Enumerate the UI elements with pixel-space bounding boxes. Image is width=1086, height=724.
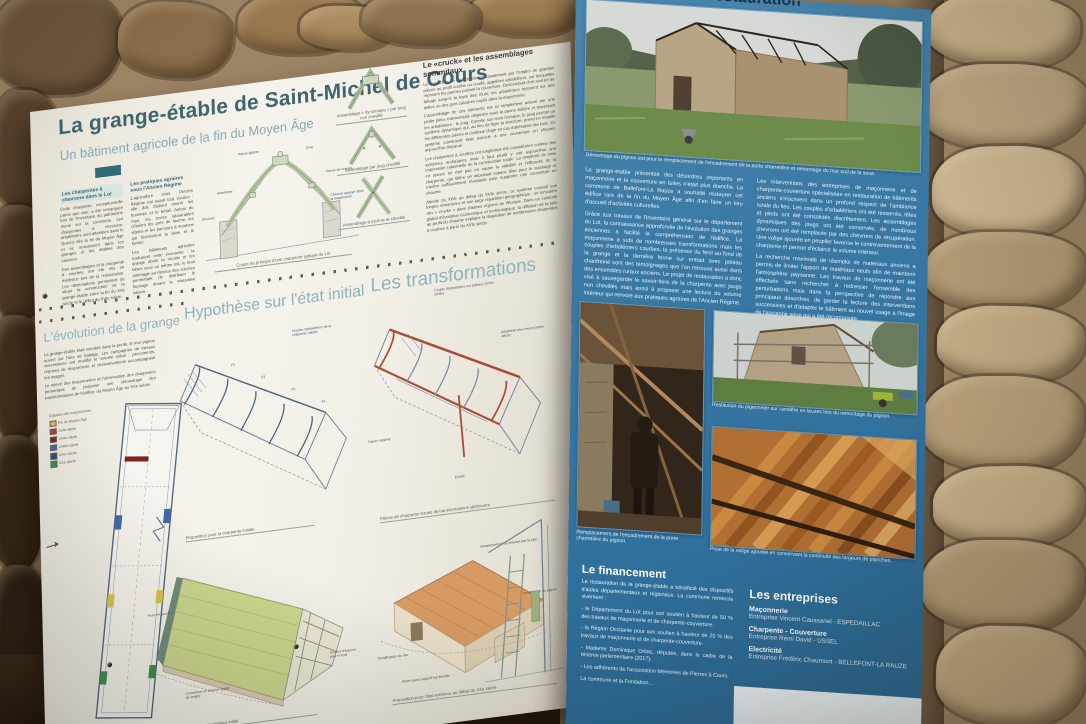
thatched-barn-drawing <box>153 544 355 723</box>
paragraph: La grange-étable présentait des désordre… <box>585 167 743 217</box>
interpretive-panel-right: Le chantier de restauration <box>565 0 931 724</box>
assembly-diagrams: Assemblage « dynamique » par joug non ch… <box>328 62 417 231</box>
stone <box>0 0 125 98</box>
legend-swatch <box>49 420 56 427</box>
intro-paragraph: Les bâtiments agricoles traduisent cette… <box>132 242 196 296</box>
intro-paragraph: Cette charpente, exceptionnelle parce qu… <box>60 199 124 264</box>
interpretive-panel-left: La grange-étable de Saint-Michel de Cour… <box>30 42 587 724</box>
legend-swatch <box>50 461 57 468</box>
legend-label: XXe siècle <box>59 459 76 466</box>
paragraph: Les interventions des entreprises de maç… <box>756 178 917 260</box>
stone <box>927 0 1081 71</box>
intro-paragraph: L'agriculture sous l'Ancien Régime est a… <box>131 188 195 247</box>
legend-swatch <box>50 436 57 443</box>
teal-badge <box>95 165 121 178</box>
stone <box>932 465 1085 548</box>
photo-porte-charretiere <box>576 301 705 536</box>
initial-axonometric <box>173 316 362 531</box>
stone <box>117 0 235 80</box>
assembly-drawing-joug-non-cheville <box>339 64 401 112</box>
panel-screw <box>42 293 47 299</box>
stone <box>922 376 1084 472</box>
companies-section: Les entreprises Maçonnerie Entreprise Vi… <box>748 587 913 677</box>
intro-column-pratiques: Les pratiques agraires sous l'Ancien Rég… <box>130 174 195 296</box>
stone <box>935 625 1086 724</box>
exterior-initial-drawing: Pose en lauzes Couverture en chaume (pai… <box>153 544 361 724</box>
evolution-text: La grange-étable était orientée dans la … <box>44 338 156 401</box>
stone <box>470 0 582 36</box>
ferme-label: F3 <box>291 388 295 392</box>
legend-label: XVIIe siècle <box>58 434 77 441</box>
legend-label: XVIe siècle <box>58 426 76 433</box>
transformations-drawing: Couple d'arbalétriers sur poteaux (XVIIe… <box>365 277 565 529</box>
legend-swatch <box>50 452 57 459</box>
assembly-drawing-mi-bois <box>342 171 405 221</box>
transformations-axonometric <box>365 278 558 499</box>
panel-footer-strip <box>733 686 921 724</box>
photo-barn-before-restoration <box>584 0 923 173</box>
initial-state-drawing: Couple d'arbalétriers de la charpente in… <box>173 315 367 551</box>
ferme-label: F4 <box>322 400 326 404</box>
photo-volige <box>710 426 917 560</box>
stone <box>925 232 1085 312</box>
stone <box>936 305 1085 384</box>
assembly-drawing-joug-cheville <box>341 121 403 167</box>
restoration-text-right: Les interventions des entreprises de maç… <box>755 178 917 328</box>
ferme-label: F1 <box>231 364 235 368</box>
legend-swatch <box>50 444 57 451</box>
legend-label: XIXe siècle <box>59 451 77 458</box>
financing-section: Le financement La restauration de la gra… <box>580 564 733 694</box>
stone <box>922 540 1084 632</box>
section-drawing <box>480 509 565 690</box>
photo-scene: La grange-étable de Saint-Michel de Cour… <box>0 0 1086 724</box>
cruck-section: Le «cruck» et les assemblages sommitaux … <box>423 44 558 234</box>
ferme-label: F2 <box>261 376 265 380</box>
stone <box>931 145 1085 240</box>
legend-swatch <box>50 428 57 435</box>
legend-label: XVIIIe siècle <box>59 442 79 449</box>
restoration-text-left: La grange-étable présentait des désordre… <box>584 167 743 309</box>
paragraph: Grâce aux travaux de l'Inventaire généra… <box>584 211 743 309</box>
photo-pigeonnier <box>712 310 919 416</box>
intro-column-charpentes: Les charpentes à chevrons dans le Lot Ce… <box>60 183 125 307</box>
stone <box>922 64 1086 150</box>
north-arrow <box>44 537 62 553</box>
company-entry: Electricité Entreprise Frédéric Chaumont… <box>748 646 912 671</box>
